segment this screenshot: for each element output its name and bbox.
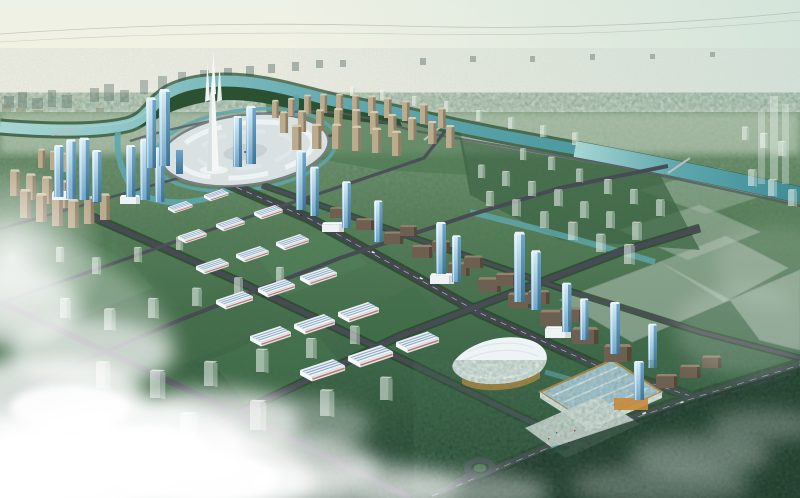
city-masterplan-rendering bbox=[0, 0, 800, 498]
rendering-canvas bbox=[0, 0, 800, 498]
